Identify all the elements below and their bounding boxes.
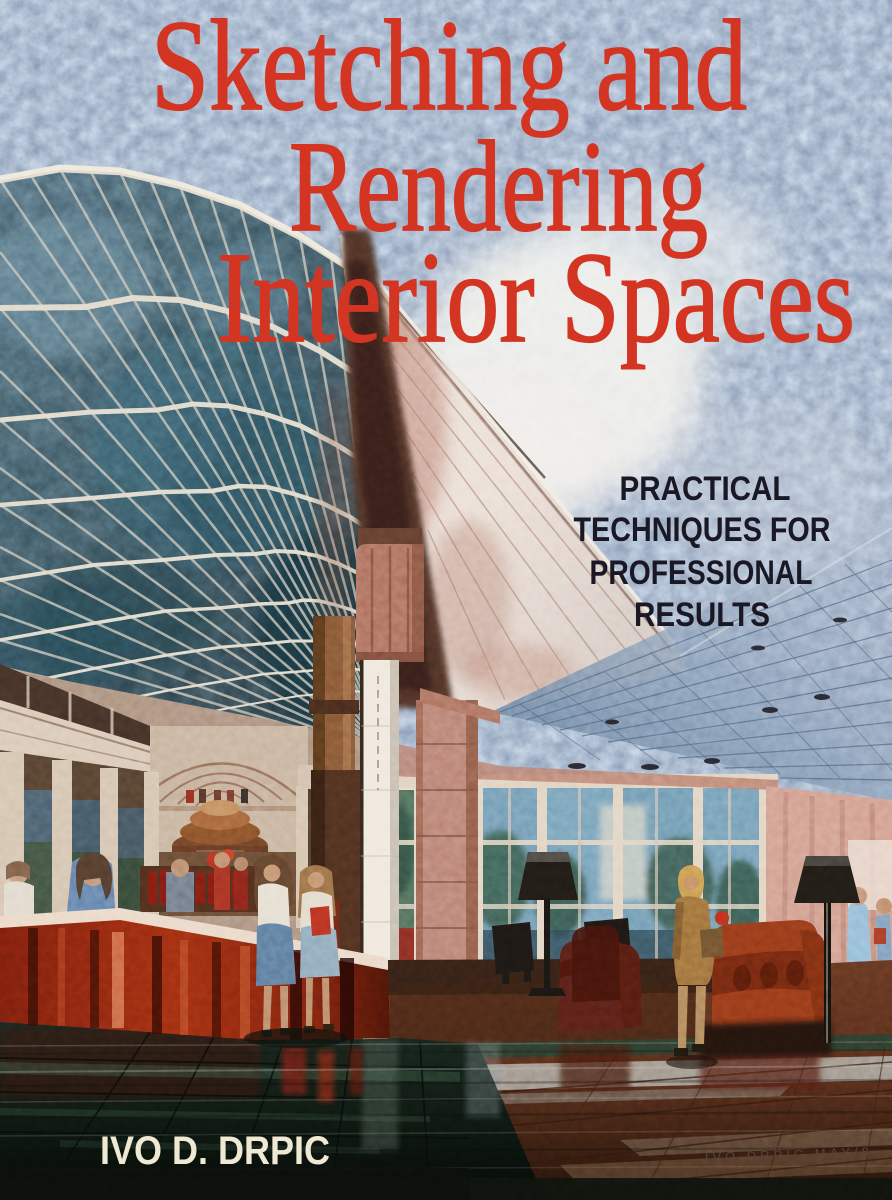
svg-text:IVO D. DRPIC: IVO D. DRPIC xyxy=(100,1129,330,1173)
svg-text:PRACTICAL: PRACTICAL xyxy=(620,470,791,508)
svg-text:PROFESSIONAL: PROFESSIONAL xyxy=(590,554,813,592)
svg-text:RESULTS: RESULTS xyxy=(634,596,770,634)
svg-text:Interior Spaces: Interior Spaces xyxy=(217,226,855,370)
svg-text:TECHNIQUES FOR: TECHNIQUES FOR xyxy=(574,511,831,549)
